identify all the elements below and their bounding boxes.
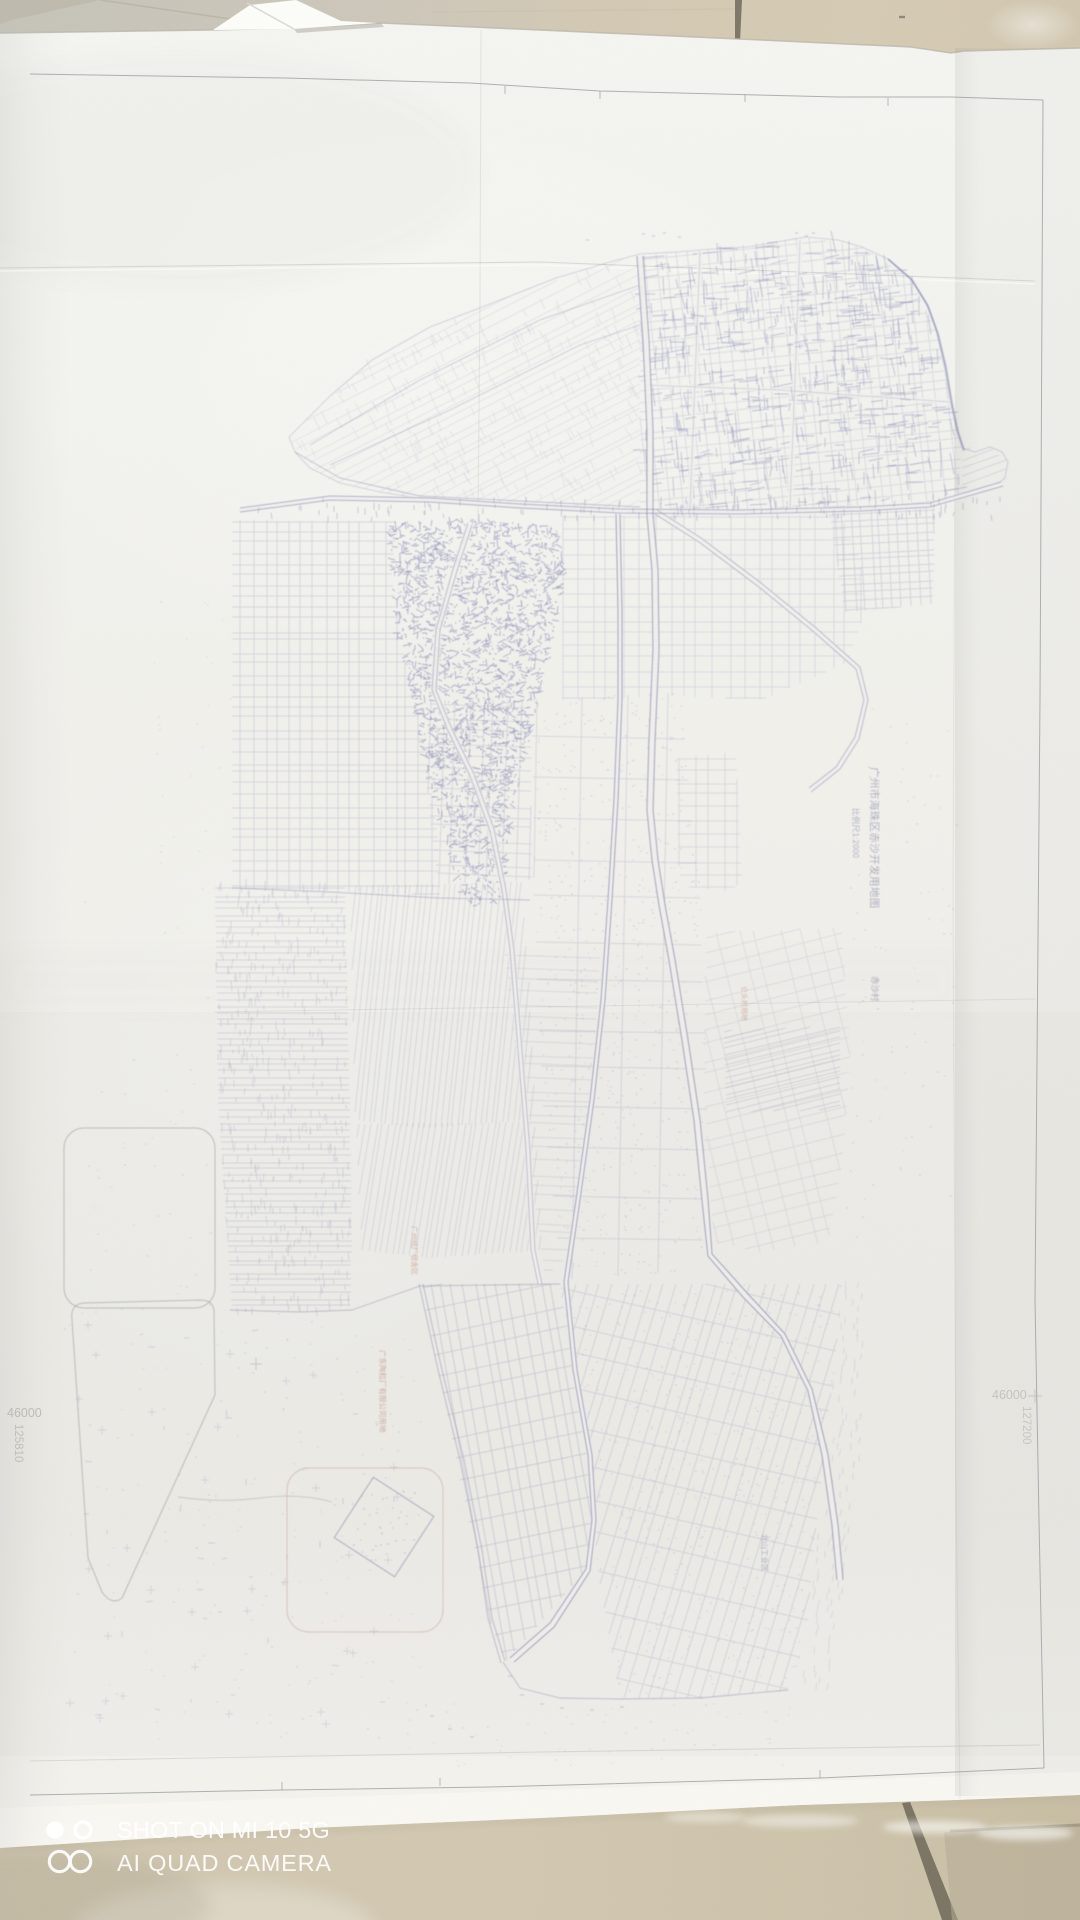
svg-text:SHOT ON MI 10 5G: SHOT ON MI 10 5G <box>117 1817 330 1843</box>
svg-text:AI QUAD CAMERA: AI QUAD CAMERA <box>117 1850 332 1876</box>
